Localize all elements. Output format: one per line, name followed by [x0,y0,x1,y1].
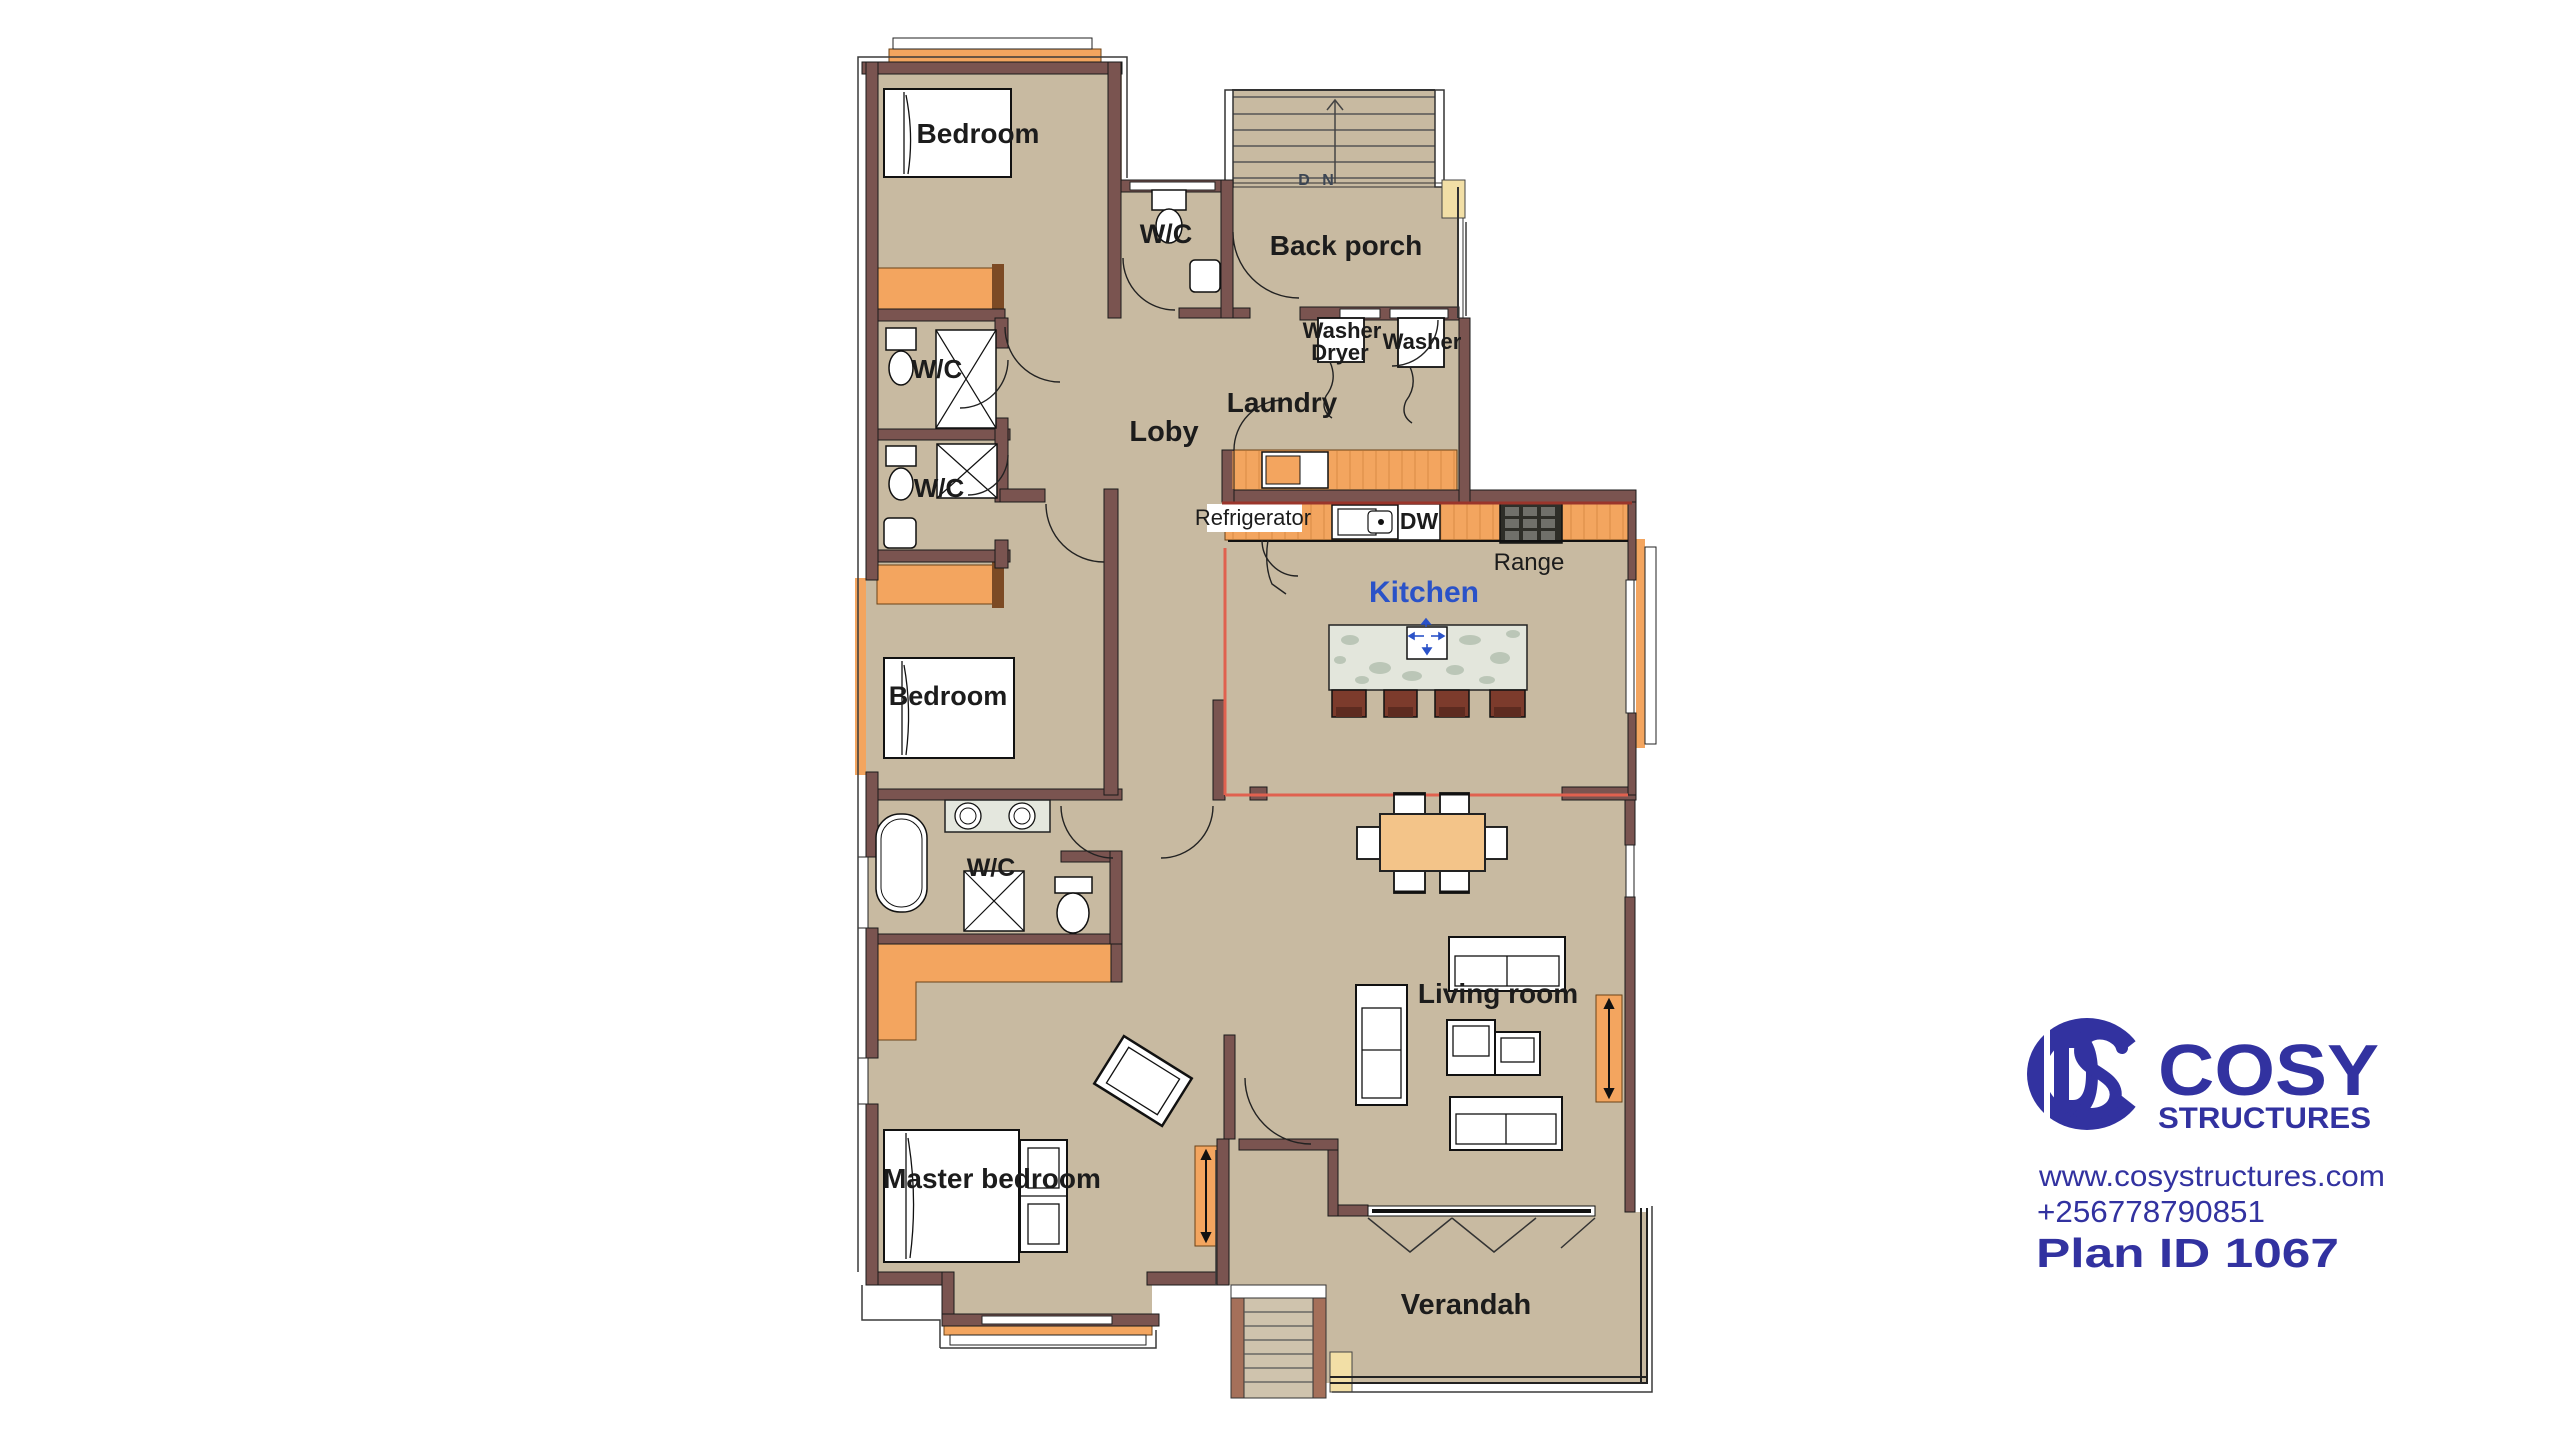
svg-text:Range: Range [1494,549,1565,576]
svg-text:STRUCTURES: STRUCTURES [2158,1102,2371,1135]
svg-text:Laundry: Laundry [1227,387,1338,418]
svg-text:Refrigerator: Refrigerator [1195,505,1311,530]
svg-text:COSY: COSY [2158,1031,2379,1111]
svg-text:Back porch: Back porch [1270,230,1423,261]
svg-text:W/C: W/C [914,473,965,503]
svg-text:Kitchen: Kitchen [1369,576,1479,609]
svg-text:www.cosystructures.com: www.cosystructures.com [2038,1160,2385,1193]
svg-text:DW: DW [1400,508,1439,534]
svg-text:Plan ID 1067: Plan ID 1067 [2036,1230,2339,1276]
svg-text:Loby: Loby [1129,416,1198,448]
svg-text:Master bedroom: Master bedroom [883,1163,1101,1194]
svg-text:W/C: W/C [912,354,963,384]
svg-text:W/C: W/C [1140,219,1192,249]
svg-text:W/C: W/C [967,854,1016,882]
svg-text:Washer: Washer [1383,329,1462,354]
svg-text:D N: D N [1298,172,1338,189]
svg-text:+256778790851: +256778790851 [2037,1194,2265,1229]
svg-text:Dryer: Dryer [1311,340,1369,365]
svg-text:Bedroom: Bedroom [889,681,1008,711]
svg-text:Bedroom: Bedroom [917,118,1040,149]
svg-text:Living room: Living room [1418,978,1578,1009]
svg-text:Verandah: Verandah [1401,1289,1532,1321]
